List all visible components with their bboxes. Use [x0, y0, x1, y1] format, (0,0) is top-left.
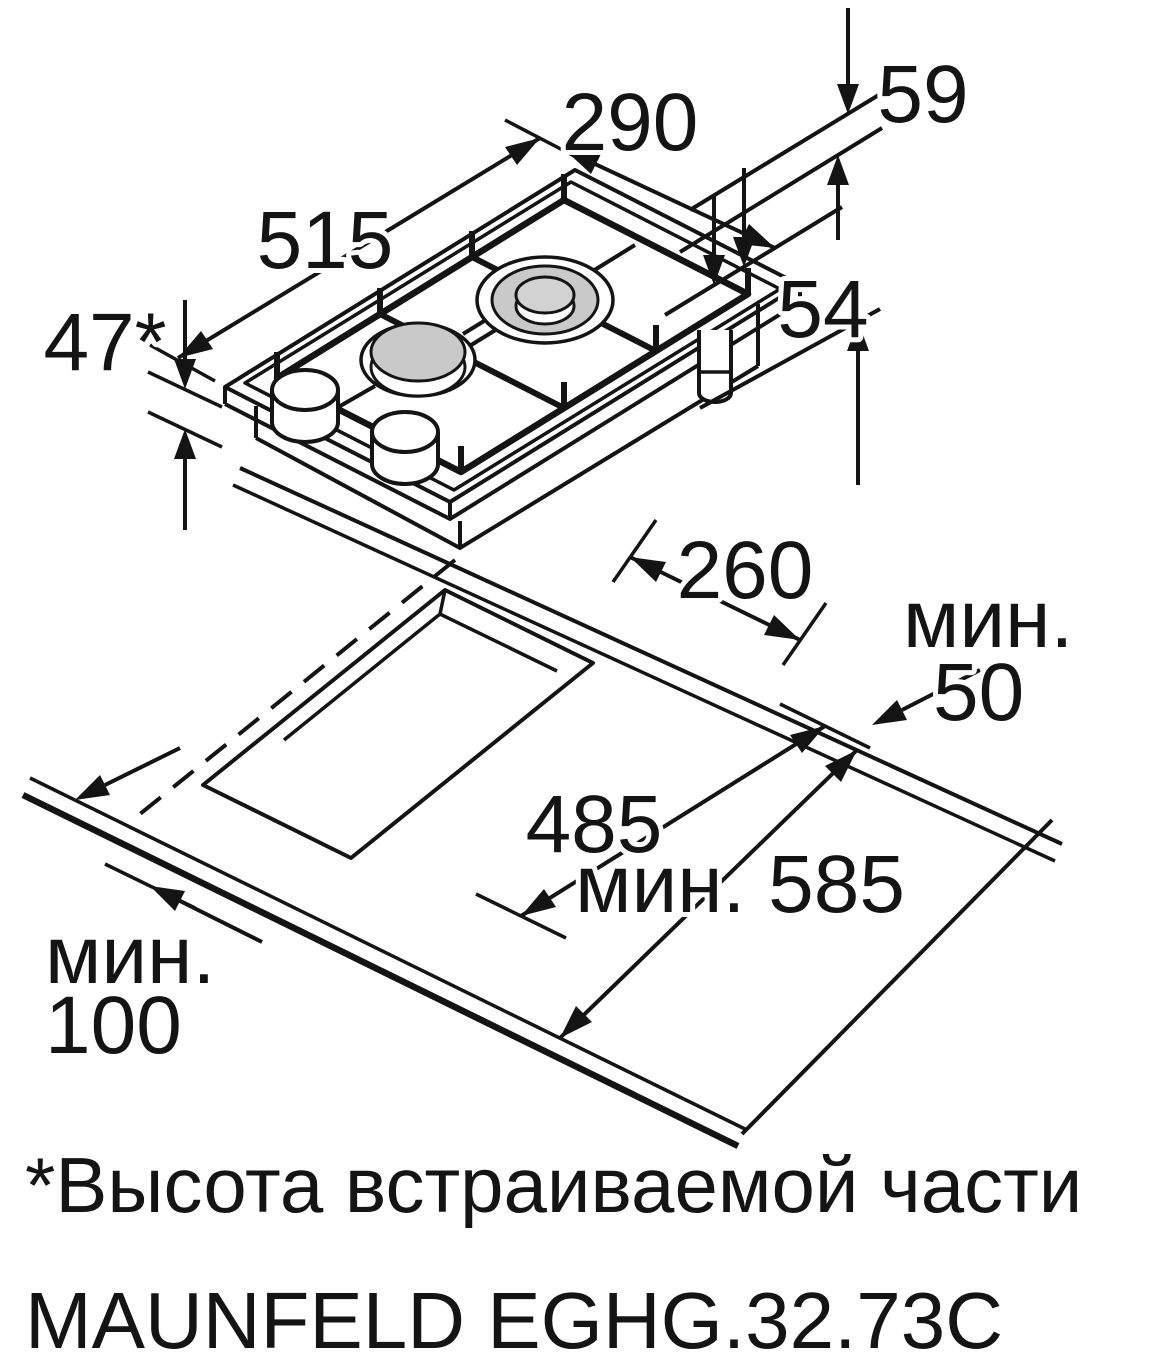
installation-diagram: 290 59 515 47* 54 [0, 0, 1168, 1363]
cutout-dimensions: 260 мин. 50 485 мин. 585 мин. 100 [45, 520, 1073, 1071]
control-knob-1 [272, 370, 338, 442]
installation-diagram-page: 290 59 515 47* 54 [0, 0, 1168, 1363]
dim-width-290: 290 [562, 77, 699, 168]
burner-large [477, 257, 613, 343]
control-knob-2 [372, 412, 438, 484]
model-name-text: MAUNFELD EGHG.32.73C [25, 1276, 1003, 1363]
dim-min-back-50: 50 [933, 647, 1024, 738]
gas-pipe [699, 330, 731, 402]
dim-cutout-260: 260 [677, 525, 814, 616]
dim-min-front-100: 100 [45, 980, 182, 1071]
footnote-text: *Высота встраиваемой части [25, 1141, 1082, 1229]
dim-body-54: 54 [777, 264, 868, 355]
dim-height-59: 59 [877, 49, 968, 140]
burner-small [361, 323, 475, 396]
dim-builtin-47: 47* [43, 297, 166, 388]
dashed-reference-line [140, 560, 455, 814]
dim-min-585: мин. 585 [575, 839, 905, 930]
dim-depth-515: 515 [257, 195, 394, 286]
cutout-thickness-lines [284, 590, 557, 740]
